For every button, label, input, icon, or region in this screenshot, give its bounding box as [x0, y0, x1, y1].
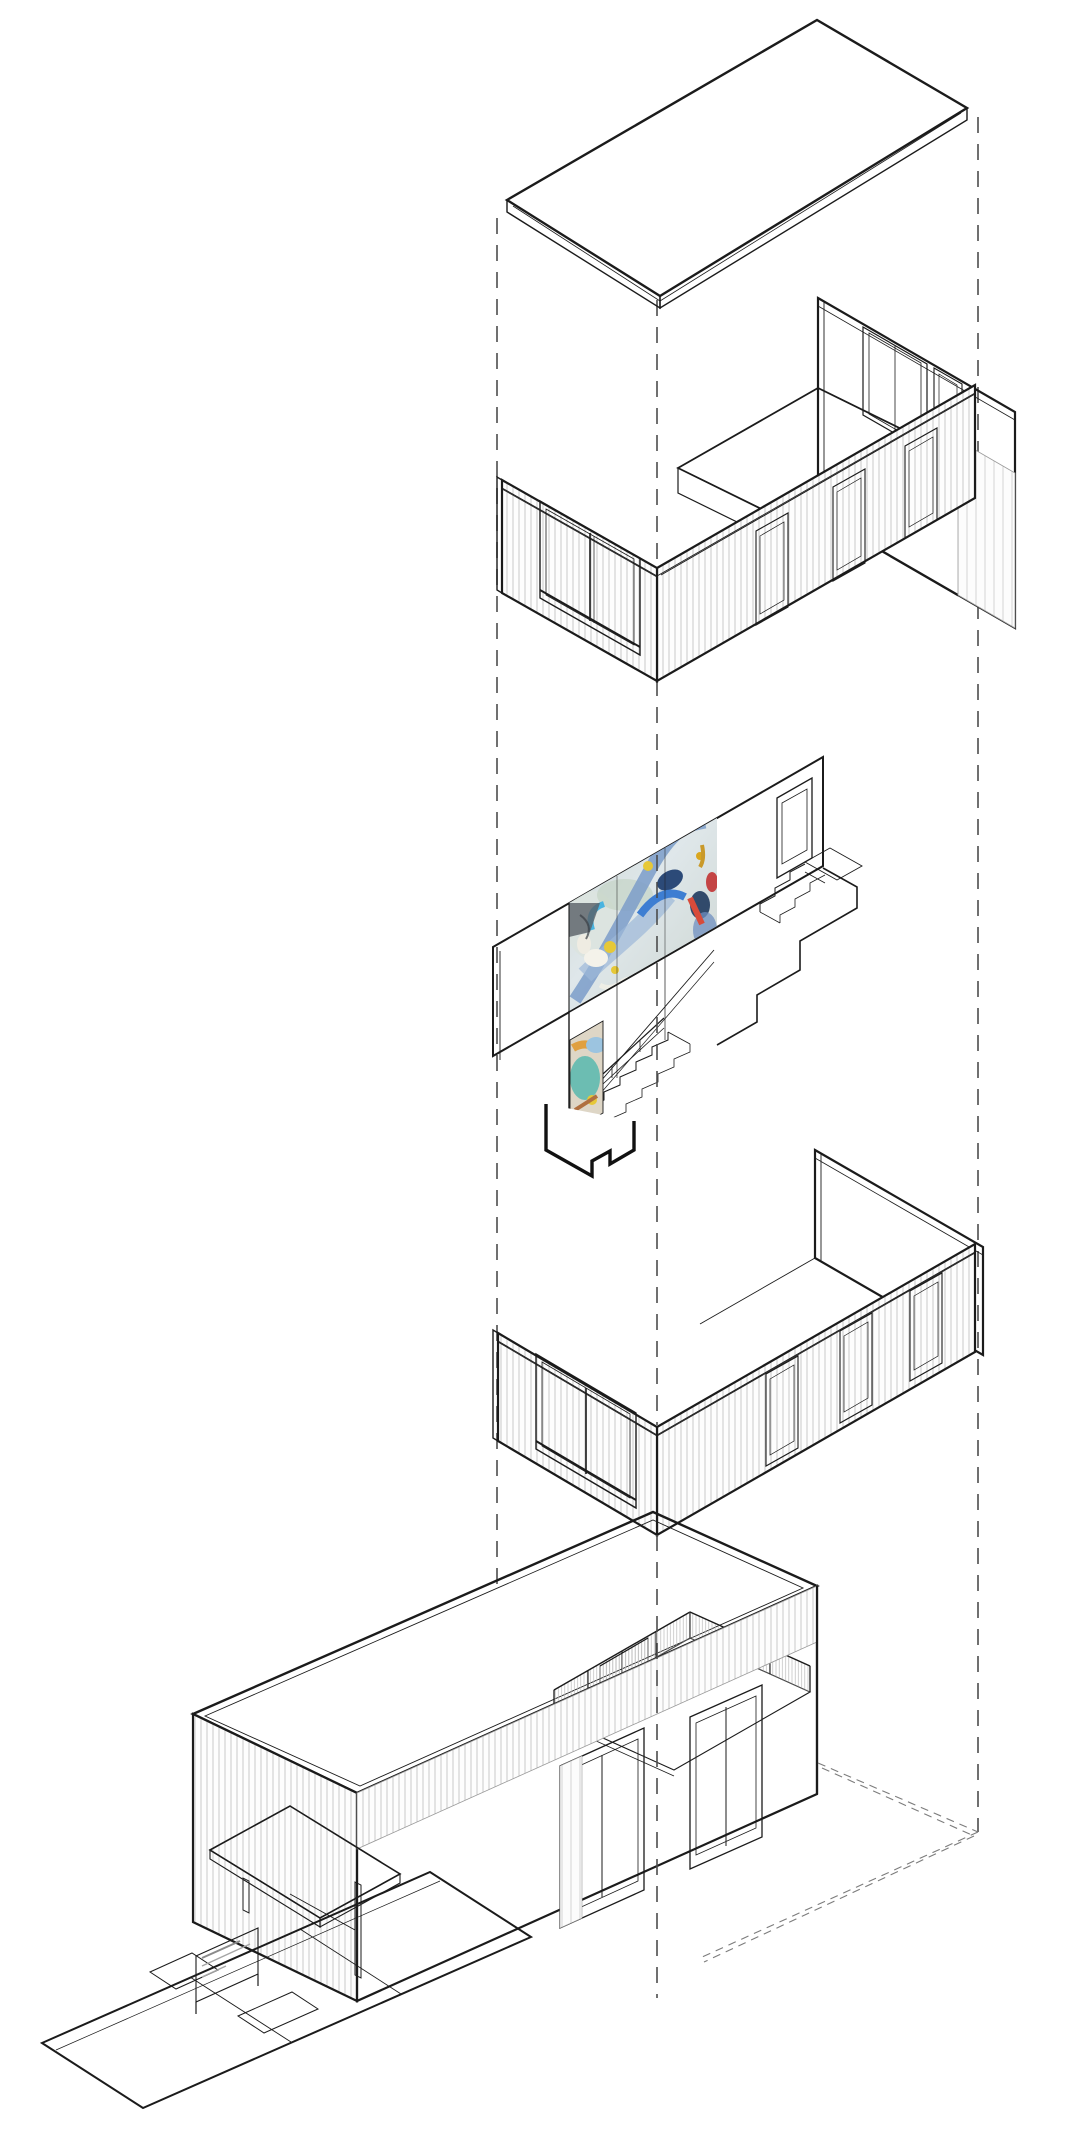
exploded-axonometric-figure	[0, 0, 1086, 2130]
upper-walls-layer	[497, 298, 1015, 681]
lower-walls-layer	[493, 1150, 983, 1535]
assembled-building-layer	[42, 1512, 978, 2108]
upper-left-wall	[497, 477, 657, 681]
sliding-door	[690, 1685, 762, 1869]
lower-left-wall	[493, 1330, 657, 1535]
facade-front	[357, 1586, 817, 2001]
drawing-canvas	[0, 0, 1086, 2130]
ramp-side-step	[238, 1992, 318, 2033]
mural-section-layer	[493, 757, 862, 1176]
facade-left	[193, 1714, 357, 2001]
sliding-door	[560, 1728, 644, 1928]
ground-outline	[700, 1763, 978, 1962]
upper-right-wall	[657, 385, 975, 681]
roof-slab-layer	[507, 20, 967, 308]
lower-right-wall	[657, 1244, 975, 1535]
